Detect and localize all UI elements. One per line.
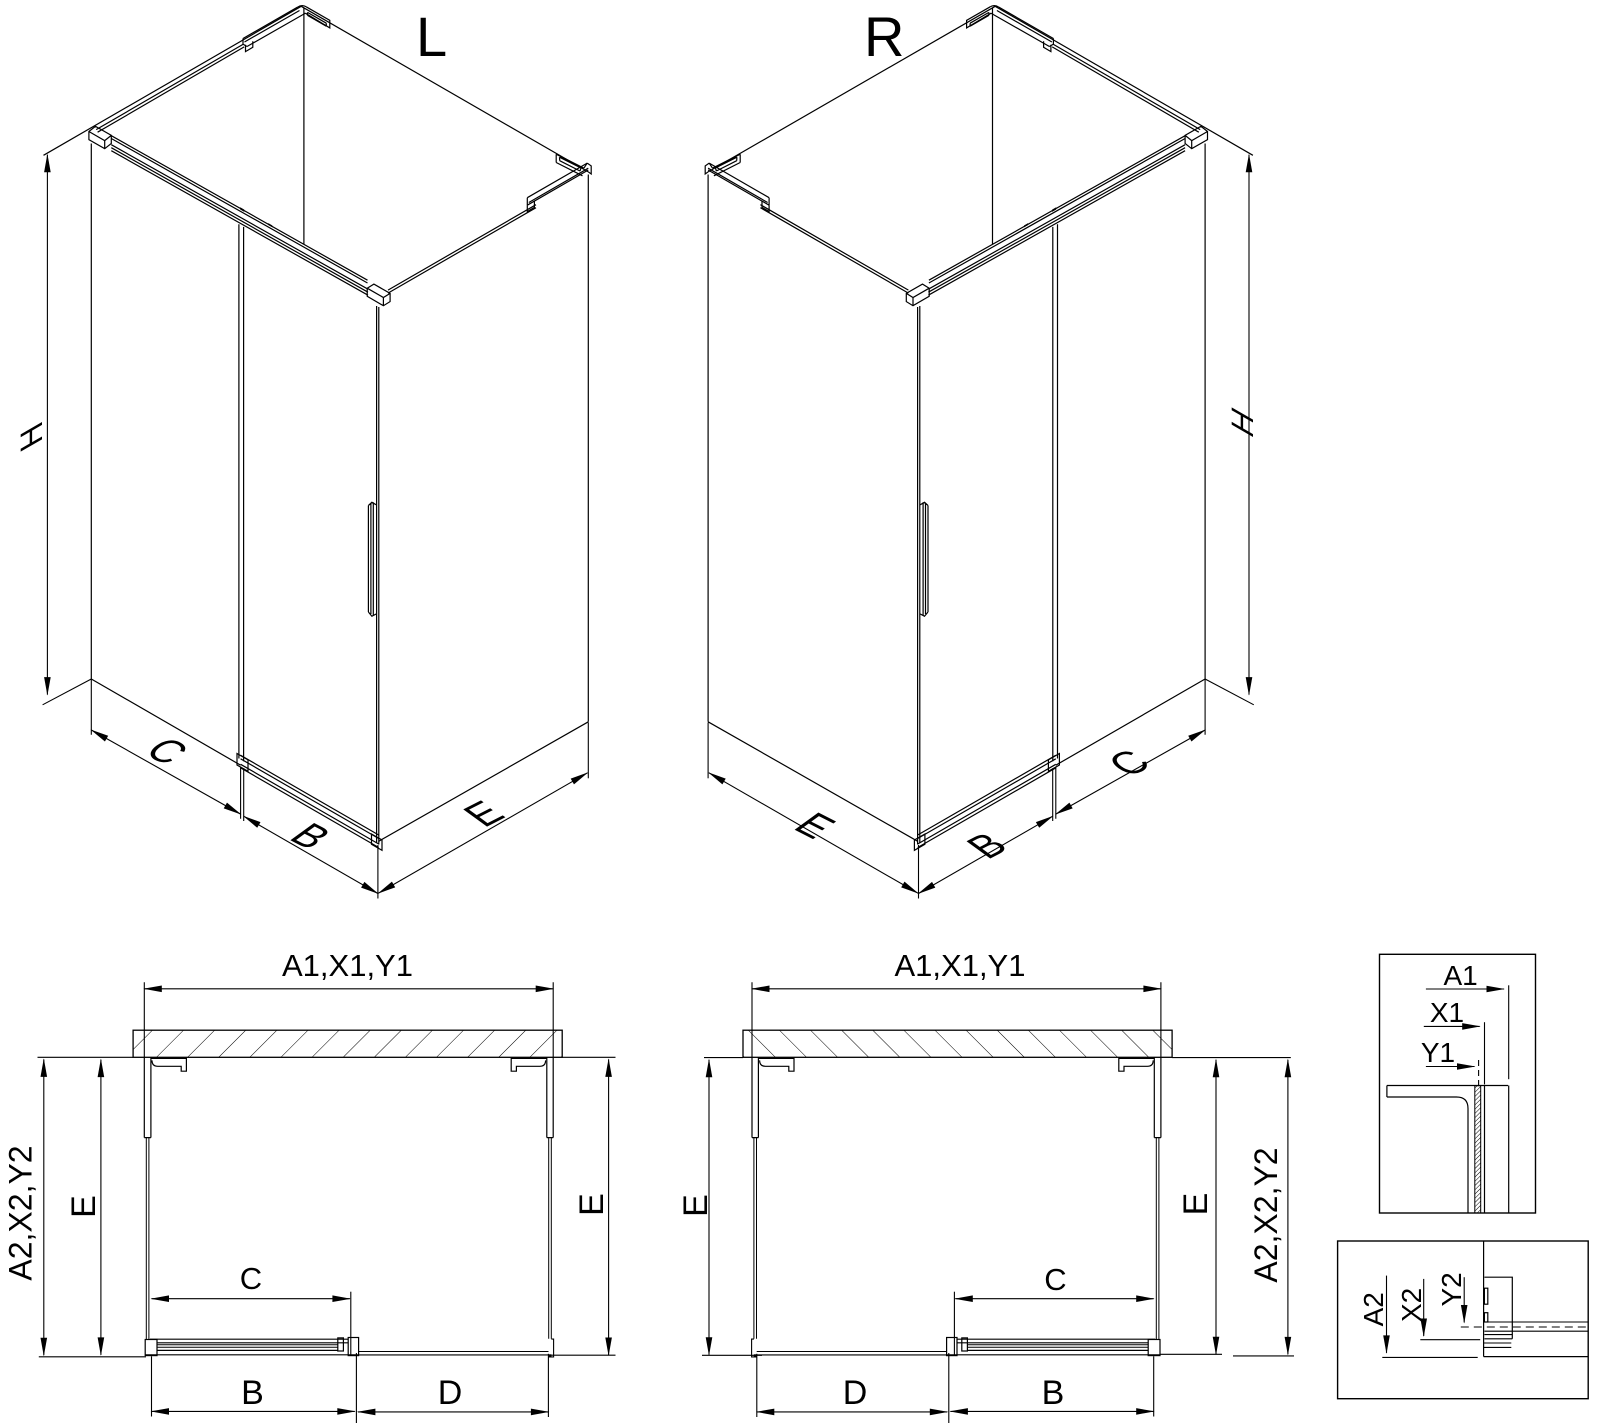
svg-text:E: E (573, 1193, 611, 1216)
svg-text:E: E (65, 1195, 103, 1218)
svg-text:D: D (843, 1374, 868, 1412)
svg-text:R: R (864, 5, 904, 68)
svg-text:A2: A2 (1358, 1292, 1389, 1326)
svg-text:D: D (438, 1374, 463, 1412)
svg-text:A2,X2,Y2: A2,X2,Y2 (1248, 1147, 1284, 1282)
svg-text:Y2: Y2 (1436, 1272, 1467, 1306)
svg-text:B: B (1042, 1374, 1065, 1412)
svg-text:C: C (1044, 1262, 1066, 1297)
svg-text:C: C (240, 1261, 262, 1296)
svg-text:Y1: Y1 (1421, 1037, 1455, 1068)
svg-text:A1: A1 (1443, 960, 1477, 991)
svg-text:E: E (677, 1194, 715, 1217)
svg-text:B: B (241, 1374, 264, 1412)
svg-text:X2: X2 (1396, 1288, 1427, 1322)
svg-text:A1,X1,Y1: A1,X1,Y1 (895, 948, 1026, 983)
svg-text:A2,X2,Y2: A2,X2,Y2 (3, 1145, 39, 1280)
svg-text:E: E (1177, 1193, 1215, 1216)
svg-text:L: L (416, 5, 447, 68)
svg-text:A1,X1,Y1: A1,X1,Y1 (282, 948, 413, 983)
svg-text:X1: X1 (1430, 997, 1464, 1028)
